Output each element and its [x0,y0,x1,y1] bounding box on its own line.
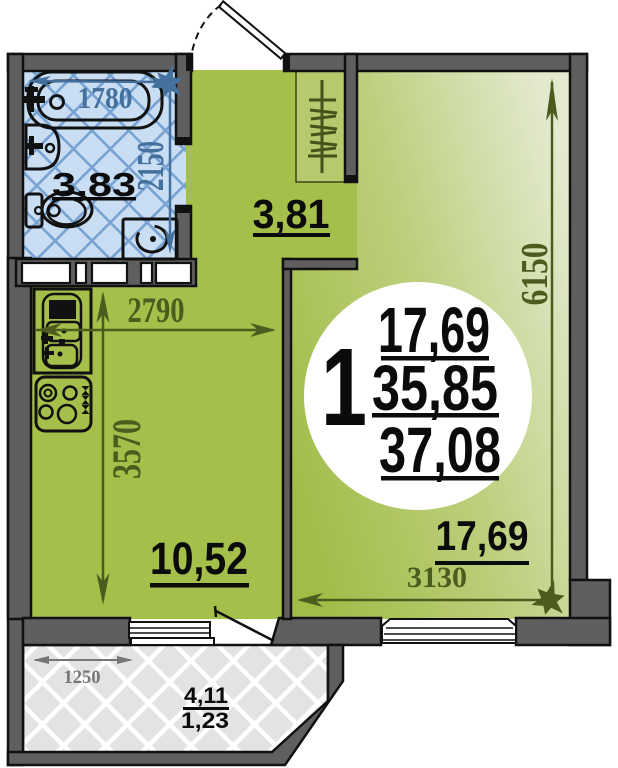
svg-text:1780: 1780 [78,80,133,115]
svg-text:1,23: 1,23 [181,708,229,733]
svg-text:2790: 2790 [128,290,185,330]
svg-text:3130: 3130 [407,561,467,594]
svg-text:3570: 3570 [104,419,149,479]
svg-text:6150: 6150 [514,243,556,306]
svg-text:17,69: 17,69 [436,512,529,559]
svg-text:37,08: 37,08 [379,414,501,486]
svg-text:2150: 2150 [130,141,172,191]
svg-text:1250: 1250 [64,667,101,688]
svg-text:10,52: 10,52 [150,533,248,584]
svg-text:1: 1 [321,326,367,449]
svg-text:4,11: 4,11 [184,683,228,708]
svg-text:3,81: 3,81 [253,191,330,237]
